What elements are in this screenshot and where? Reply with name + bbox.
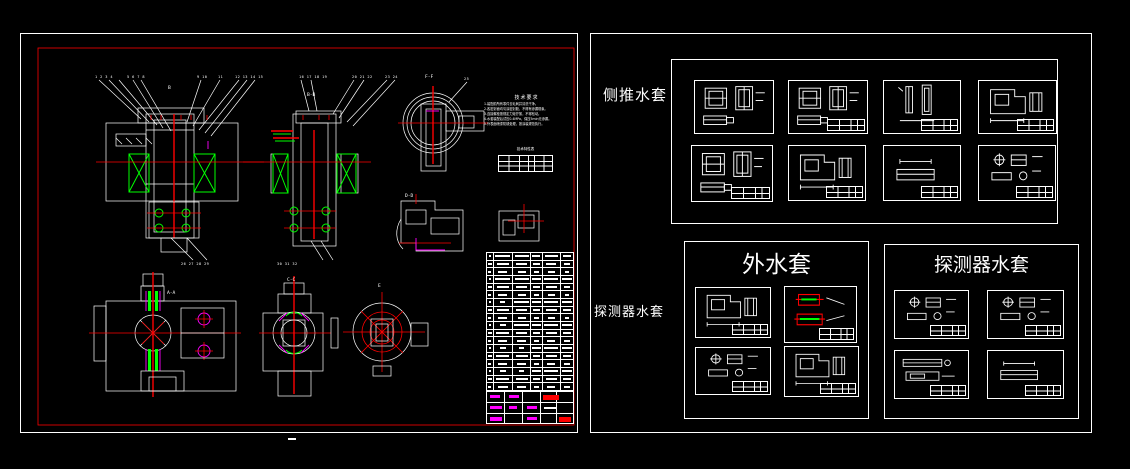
- bom-cell: [531, 261, 542, 268]
- bom-row: [487, 360, 573, 368]
- bom-row: [487, 322, 573, 330]
- sheet-title-block: [1025, 325, 1062, 336]
- detector-side-label: 探测器水套: [594, 301, 664, 320]
- bom-cell: [531, 253, 542, 260]
- sheet-side-thruster-5[interactable]: [691, 145, 773, 202]
- bom-row: [487, 353, 573, 361]
- bom-cell: [494, 368, 513, 375]
- callout-row: 23 24: [385, 75, 398, 79]
- detector-jacket-title: 探测器水套: [885, 250, 1078, 277]
- bom-cell: [494, 353, 513, 360]
- bom-cell: [494, 299, 513, 306]
- spec-table: [498, 155, 553, 172]
- view-plan-aa: [89, 272, 241, 397]
- sheet-title-block: [826, 186, 863, 198]
- bom-cell: [494, 383, 513, 390]
- bom-row: [487, 330, 573, 338]
- bom-cell: [494, 261, 513, 268]
- bom-row: [487, 261, 573, 269]
- sheet-outer-jacket-3[interactable]: [695, 347, 771, 395]
- bom-cell: [543, 337, 561, 344]
- sheet-title-block: [827, 119, 865, 131]
- sheet-side-thruster-2[interactable]: [788, 80, 868, 134]
- sheet-detector-jacket-4[interactable]: [987, 350, 1064, 399]
- bom-cell: [531, 368, 542, 375]
- bom-cell: [531, 299, 542, 306]
- bom-cell: [513, 368, 531, 375]
- bom-cell: [494, 284, 513, 291]
- bom-cell: [531, 345, 542, 352]
- bom-cell: [561, 345, 573, 352]
- view-side-cc: [259, 276, 331, 396]
- bom-cell: [513, 360, 531, 367]
- sheet-title-block: [1017, 119, 1054, 131]
- view-front-assembly: [96, 80, 264, 260]
- sheet-title-block: [921, 186, 958, 198]
- callout-row: 11: [218, 75, 223, 79]
- bom-cell: [494, 360, 513, 367]
- bom-cell: [494, 268, 513, 275]
- bom-row: [487, 314, 573, 322]
- bom-cell: [494, 322, 513, 329]
- bom-cell: [561, 261, 573, 268]
- section-arrow-b: B: [168, 85, 171, 91]
- bom-cell: [494, 337, 513, 344]
- sheet-title-block: [820, 383, 856, 394]
- view-label-aa: A-A: [167, 290, 176, 296]
- scale-field: [559, 417, 571, 422]
- bom-cell: [531, 360, 542, 367]
- bom-cell: [531, 291, 542, 298]
- bom-cell: [513, 284, 531, 291]
- bom-cell: [543, 291, 561, 298]
- bom-row: [487, 368, 573, 376]
- bom-cell: [531, 307, 542, 314]
- bom-cell: [531, 376, 542, 383]
- sheet-outer-jacket-2[interactable]: [784, 286, 857, 343]
- bom-cell: [543, 360, 561, 367]
- sheet-title-block: [819, 328, 854, 340]
- bom-cell: [543, 253, 561, 260]
- tech-notes: 技术要求 1.装配前所有零件去毛刺并清洗干净。 2.各密封面均匀涂密封胶，不得有…: [484, 94, 569, 136]
- bom-cell: [561, 337, 573, 344]
- bom-table[interactable]: [486, 252, 574, 391]
- bom-cell: [513, 307, 531, 314]
- bom-row: [487, 253, 573, 261]
- view-label-bb: B-B: [307, 92, 316, 98]
- bom-cell: [494, 276, 513, 283]
- callout-row: 16 17 18 19: [299, 75, 327, 79]
- bom-row: [487, 307, 573, 315]
- bom-cell: [561, 330, 573, 337]
- bom-row: [487, 276, 573, 284]
- callout-row: 5 6 7 8: [127, 75, 145, 79]
- bom-cell: [543, 261, 561, 268]
- side-thruster-gridbox: [671, 59, 1058, 224]
- bom-cell: [531, 337, 542, 344]
- bom-cell: [543, 376, 561, 383]
- title-block-field: [509, 406, 517, 409]
- callout-row: 12 13 14 15: [235, 75, 263, 79]
- bom-row: [487, 284, 573, 292]
- callout-row: 20 21 22: [352, 75, 373, 79]
- bom-cell: [494, 376, 513, 383]
- bom-cell: [561, 253, 573, 260]
- bom-row: [487, 345, 573, 353]
- sheet-detector-jacket-2[interactable]: [987, 290, 1064, 339]
- bom-row: [487, 291, 573, 299]
- sheet-side-thruster-1[interactable]: [694, 80, 774, 134]
- view-detail-dd: [397, 194, 463, 251]
- bom-cell: [561, 360, 573, 367]
- sheet-title-block: [1025, 385, 1062, 396]
- sheet-title-block: [930, 385, 966, 396]
- bom-row: [487, 337, 573, 345]
- view-top-ff: [398, 82, 488, 171]
- bom-cell: [561, 353, 573, 360]
- bom-cell: [494, 307, 513, 314]
- view-label-e: E: [378, 283, 381, 289]
- bom-cell: [513, 314, 531, 321]
- bom-cell: [543, 314, 561, 321]
- sheet-title-block: [930, 325, 966, 336]
- sheet-title-block: [732, 381, 768, 392]
- view-label-ff: F-F: [425, 74, 434, 80]
- bom-cell: [513, 268, 531, 275]
- callout-row-bottom: 30 31 32: [277, 262, 298, 266]
- callout-row: 9 10: [197, 75, 207, 79]
- bom-cell: [561, 276, 573, 283]
- assembly-sheet-panel[interactable]: 1 2 3 4 5 6 7 8 9 10 11 12 13 14 15 16 1…: [20, 33, 578, 433]
- drawing-name-field: [543, 395, 559, 400]
- bom-cell: [513, 330, 531, 337]
- bom-cell: [513, 253, 531, 260]
- view-section-bb: [243, 80, 395, 260]
- bom-cell: [513, 291, 531, 298]
- sheet-side-thruster-3[interactable]: [883, 80, 961, 134]
- view-label-dd: D-D: [405, 193, 414, 199]
- detector-jacket-box: 探测器水套: [884, 244, 1079, 419]
- sheet-side-thruster-6[interactable]: [788, 145, 866, 201]
- tech-notes-title: 技术要求: [484, 94, 569, 101]
- sheet-title-block: [732, 324, 768, 335]
- bom-cell: [513, 276, 531, 283]
- bom-cell: [494, 345, 513, 352]
- bom-cell: [561, 268, 573, 275]
- cad-workspace: 1 2 3 4 5 6 7 8 9 10 11 12 13 14 15 16 1…: [0, 0, 1130, 469]
- sheet-outer-jacket-4[interactable]: [784, 346, 859, 397]
- bom-cell: [513, 261, 531, 268]
- bom-cell: [561, 314, 573, 321]
- title-block-field: [527, 406, 537, 409]
- outer-jacket-title: 外水套: [685, 245, 868, 279]
- bom-cell: [543, 322, 561, 329]
- callout-row: 1 2 3 4: [95, 75, 113, 79]
- bom-cell: [513, 322, 531, 329]
- title-block-field: [490, 406, 502, 409]
- outer-jacket-box: 外水套: [684, 241, 869, 419]
- bom-cell: [543, 353, 561, 360]
- bom-cell: [531, 330, 542, 337]
- bom-cell: [543, 268, 561, 275]
- bom-cell: [543, 368, 561, 375]
- bom-cell: [531, 268, 542, 275]
- part-drawing: [696, 82, 772, 133]
- bom-cell: [561, 322, 573, 329]
- bom-cell: [494, 291, 513, 298]
- bom-cell: [543, 383, 561, 390]
- part-sheets-panel[interactable]: 侧推水套: [590, 33, 1092, 433]
- sheet-side-thruster-7[interactable]: [883, 145, 961, 201]
- sheet-title-block: [1016, 186, 1053, 198]
- bom-cell: [543, 330, 561, 337]
- bom-cell: [531, 322, 542, 329]
- sheet-side-thruster-4[interactable]: [978, 80, 1057, 134]
- bom-cell: [494, 314, 513, 321]
- bom-cell: [561, 299, 573, 306]
- bom-cell: [494, 330, 513, 337]
- bom-cell: [531, 314, 542, 321]
- bom-cell: [543, 276, 561, 283]
- view-detail-right: [499, 204, 544, 241]
- bom-cell: [561, 284, 573, 291]
- bom-row: [487, 376, 573, 384]
- bom-cell: [513, 345, 531, 352]
- bom-cell: [561, 368, 573, 375]
- view-bottom-circular: [331, 292, 428, 376]
- sheet-outer-jacket-1[interactable]: [695, 287, 771, 338]
- title-block-field: [544, 407, 556, 409]
- bom-cell: [561, 383, 573, 390]
- bom-cell: [543, 307, 561, 314]
- tech-note-item: 5.外表面喷漆防锈处理，按涂装规范执行。: [484, 122, 569, 127]
- title-block-field: [527, 417, 537, 420]
- bom-cell: [513, 376, 531, 383]
- sheet-title-block: [921, 119, 958, 131]
- bom-cell: [543, 299, 561, 306]
- callout-row: 25: [464, 77, 469, 81]
- view-label-cc: C-C: [287, 277, 296, 283]
- bom-cell: [531, 383, 542, 390]
- bom-cell: [513, 383, 531, 390]
- sheet-detector-jacket-3[interactable]: [894, 350, 969, 399]
- bom-cell: [531, 276, 542, 283]
- title-block: [486, 391, 574, 424]
- bom-cell: [543, 284, 561, 291]
- bom-row: [487, 268, 573, 276]
- bom-cell: [561, 307, 573, 314]
- page-footer-mark: [288, 438, 296, 440]
- bom-cell: [513, 337, 531, 344]
- bom-row: [487, 299, 573, 307]
- bom-cell: [543, 345, 561, 352]
- bom-cell: [531, 353, 542, 360]
- bom-row: [487, 383, 573, 390]
- bom-cell: [561, 376, 573, 383]
- bom-cell: [513, 353, 531, 360]
- side-thruster-label: 侧推水套: [603, 84, 667, 105]
- bom-cell: [494, 253, 513, 260]
- sheet-title-block: [731, 187, 770, 199]
- sheet-detector-jacket-1[interactable]: [894, 290, 969, 339]
- bom-cell: [561, 291, 573, 298]
- sheet-side-thruster-8[interactable]: [978, 145, 1056, 201]
- title-block-field: [490, 395, 500, 398]
- title-block-field: [490, 417, 502, 421]
- spec-table-title: 技术特性表: [498, 147, 553, 152]
- bom-cell: [531, 284, 542, 291]
- title-block-field: [509, 395, 519, 398]
- bom-cell: [513, 299, 531, 306]
- callout-row-bottom: 26 27 28 29: [181, 262, 209, 266]
